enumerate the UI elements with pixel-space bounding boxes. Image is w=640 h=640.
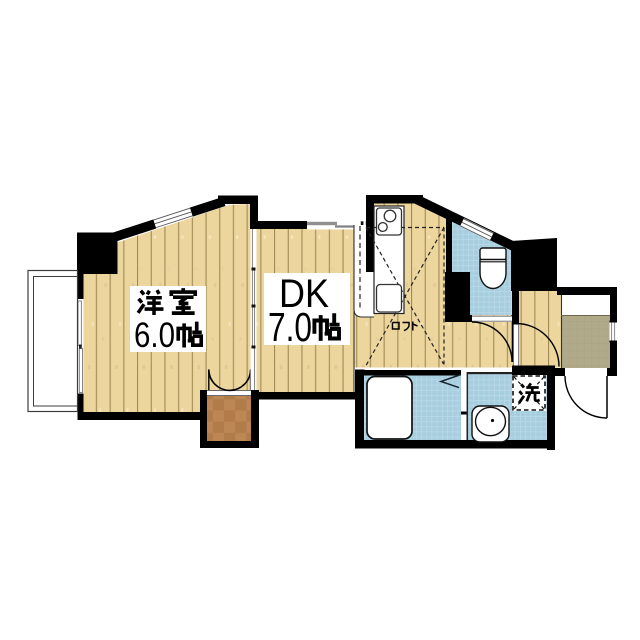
svg-text:6.0: 6.0 <box>134 316 175 355</box>
svg-text:7.0: 7.0 <box>268 304 312 350</box>
